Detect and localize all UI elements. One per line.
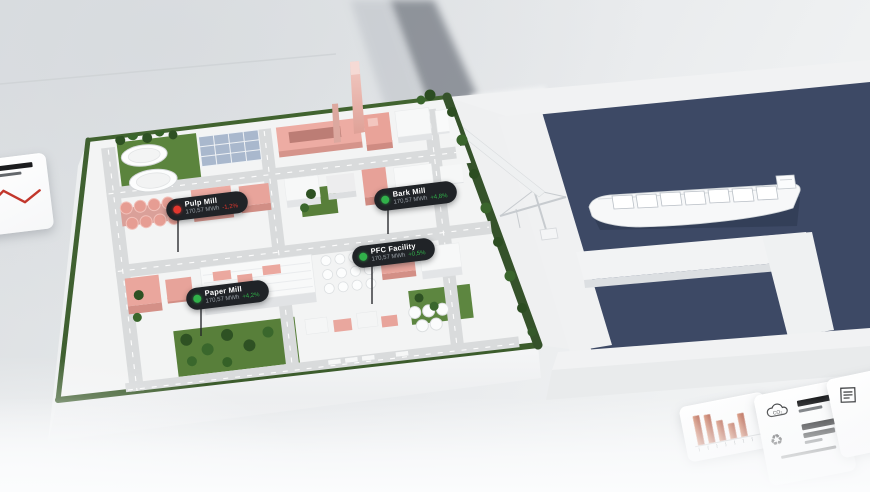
badge-delta: -1,2% [222, 203, 238, 212]
certificate-icon [835, 382, 861, 408]
bar [737, 413, 748, 438]
bar [727, 422, 737, 439]
badge-delta: +0,5% [408, 250, 426, 259]
line-chart-icon [0, 178, 44, 215]
badge-delta: +4,8% [430, 193, 448, 202]
ship-superstructure [776, 175, 796, 189]
co2-label: CO₂ [772, 409, 782, 417]
recycle-icon: ♻ [768, 427, 799, 449]
status-dot [359, 252, 368, 261]
bar [692, 415, 705, 446]
bar [703, 414, 715, 443]
status-dot [381, 195, 390, 204]
digital-twin-scene: Pulp Mill 170,57 MWh -1,2% Bark Mill 170… [0, 0, 870, 492]
bar [716, 419, 727, 441]
status-dot [173, 205, 182, 214]
co2-cloud-icon: CO₂ [763, 399, 792, 424]
text-placeholder [0, 171, 22, 177]
kpi-trend-card[interactable] [0, 152, 54, 237]
badge-delta: +4,2% [242, 292, 260, 301]
caption-placeholder [781, 445, 836, 458]
text-placeholder [0, 162, 33, 171]
status-dot [193, 294, 202, 303]
solar-panel-array [198, 130, 261, 167]
